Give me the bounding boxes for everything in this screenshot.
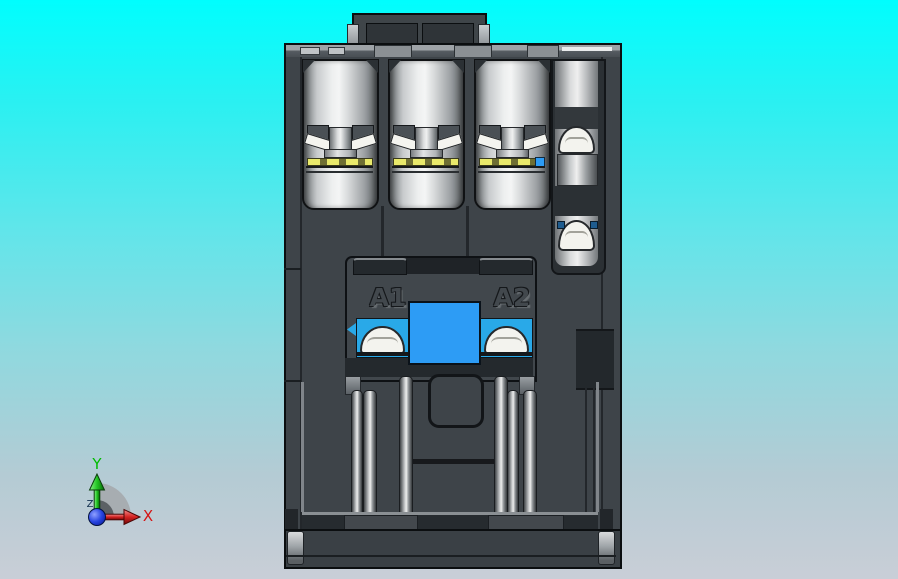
aux-chip-left [557, 221, 565, 229]
handle-recess-left [366, 23, 418, 45]
coil-cap-right [479, 258, 533, 275]
z-axis-label: Z [87, 499, 94, 510]
coil-cap-left [353, 258, 407, 275]
corner-notch-right [600, 509, 613, 530]
inner-wall-highlight-left [301, 382, 304, 512]
aux-chip-right [590, 221, 598, 229]
coil-terminal-label-a1: A1 [362, 283, 414, 312]
pole-window-2 [388, 59, 465, 210]
window-lowline [306, 171, 373, 173]
right-seam-1 [585, 388, 587, 512]
coil-clamp-a1 [360, 326, 405, 355]
right-side-recess [576, 329, 614, 390]
clamp-underline [306, 166, 373, 168]
guide-rod [399, 376, 413, 525]
clamp-boss-base [324, 149, 357, 158]
y-axis-label: Y [91, 455, 102, 473]
body-seam-left-h2 [284, 380, 301, 382]
center-recess [428, 374, 484, 428]
coil-clamp-a2 [484, 326, 529, 355]
contact-strip [307, 158, 373, 166]
window-corner [475, 60, 487, 73]
coil-terminal-label-a2: A2 [486, 283, 538, 312]
coil-terminal-base [481, 352, 532, 356]
guide-rod [351, 390, 363, 525]
cad-viewport[interactable]: A1 A2 [0, 0, 898, 579]
guide-crossbar [404, 459, 504, 464]
coil-top-channel [406, 258, 480, 274]
window-corner [366, 60, 378, 73]
corner-notch-left [285, 509, 298, 530]
guide-rod [507, 390, 519, 525]
mounting-handle [352, 13, 487, 47]
window-corner [303, 60, 315, 73]
aux-separator [555, 186, 598, 216]
right-seam-2 [593, 388, 595, 512]
cap-highlight [562, 47, 612, 51]
x-axis-label: X [143, 507, 153, 525]
clamp-underline [478, 166, 545, 168]
window-lowline [392, 171, 459, 173]
window-corner [452, 60, 464, 73]
base-corner-post-left [287, 531, 304, 565]
clamp-boss-base [496, 149, 529, 158]
coil-terminal-a2 [480, 318, 533, 358]
clamp-underline [392, 166, 459, 168]
guide-rod [363, 390, 377, 525]
base-bottom-seam [286, 555, 616, 557]
aux-cylinder [557, 154, 598, 186]
base-plate [284, 529, 622, 569]
guide-rod [523, 390, 537, 525]
coil-terminal-base [357, 352, 408, 356]
sill-pad-left [344, 515, 418, 530]
pole-window-1 [302, 59, 379, 210]
contact-strip [393, 158, 459, 166]
sill-pad-right [488, 515, 564, 530]
window-corner [538, 60, 550, 73]
body-seam-left-h [284, 268, 301, 270]
y-axis-arrowhead [90, 474, 105, 490]
window-lowline [478, 171, 545, 173]
guide-rod [494, 376, 508, 525]
axis-triad[interactable]: Y X Z [52, 448, 162, 536]
cap-tab [300, 47, 320, 55]
origin-sphere [89, 509, 106, 526]
mullion-seam-1 [381, 206, 384, 258]
coil-terminal-a1 [356, 318, 409, 358]
handle-recess-right [422, 23, 474, 45]
cap-tab [328, 47, 345, 55]
clamp-boss-base [410, 149, 443, 158]
mullion-seam-2 [466, 206, 469, 258]
inner-wall-highlight-right [596, 382, 599, 512]
base-corner-post-right [598, 531, 615, 565]
coil-center-cover [408, 301, 481, 365]
x-axis-arrowhead [124, 510, 140, 525]
window-corner [389, 60, 401, 73]
pole-window-3 [474, 59, 551, 210]
